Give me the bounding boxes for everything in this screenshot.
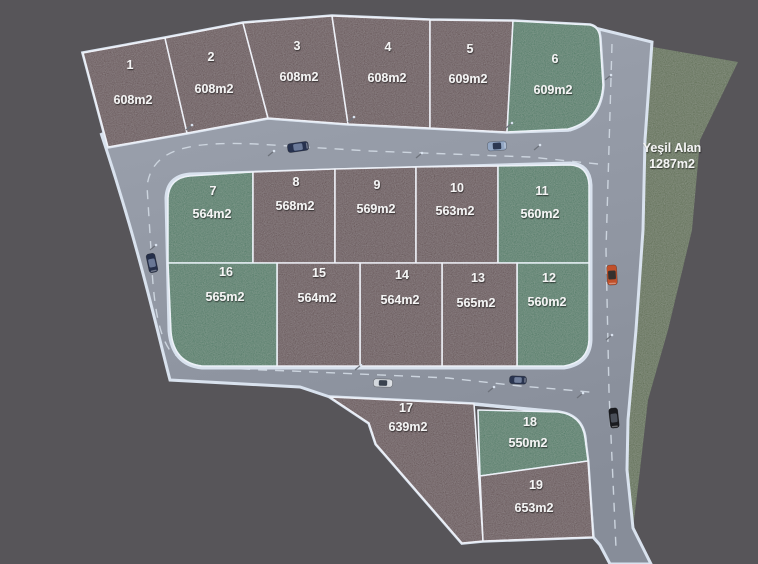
plot-number-label: 7 (210, 184, 217, 198)
plot-area-label: 609m2 (534, 83, 573, 97)
plot-number-label: 12 (542, 271, 556, 285)
plot-area-label: 608m2 (114, 93, 153, 107)
plot-number-label: 6 (552, 52, 559, 66)
plot-area-label: 564m2 (381, 293, 420, 307)
plot-number-label: 13 (471, 271, 485, 285)
sedan-navy-icon (509, 376, 526, 385)
plot-area-label: 565m2 (457, 296, 496, 310)
plot-number-label: 8 (293, 175, 300, 189)
plot-number-label: 1 (127, 58, 134, 72)
plot-number-label: 16 (219, 265, 233, 279)
sedan-light-blue-icon (487, 141, 507, 151)
plot-area-label: 550m2 (509, 436, 548, 450)
plot-area-label: 653m2 (515, 501, 554, 515)
site-plan-svg: Yeşil Alan 1287m2 1608m22608m23608m24608… (0, 0, 758, 564)
plot-number-label: 5 (467, 42, 474, 56)
site-plan: Yeşil Alan 1287m2 1608m22608m23608m24608… (0, 0, 758, 564)
plot-area-label: 564m2 (298, 291, 337, 305)
plot-number-label: 11 (535, 184, 548, 198)
sedan-white-icon (373, 379, 392, 388)
plot-area-label: 569m2 (357, 202, 396, 216)
plot-area-label: 609m2 (449, 72, 488, 86)
plot-number-label: 19 (529, 478, 543, 492)
plot-6 (507, 21, 603, 132)
plot-area-label: 608m2 (195, 82, 234, 96)
plot-area-label: 560m2 (521, 207, 560, 221)
green-area-value: 1287m2 (649, 157, 695, 171)
plot-area-label: 608m2 (368, 71, 407, 85)
plot-number-label: 14 (395, 268, 409, 282)
plot-area-label: 564m2 (193, 207, 232, 221)
plot-area-label: 560m2 (528, 295, 567, 309)
plot-area-label: 639m2 (389, 420, 428, 434)
sedan-orange-icon (606, 265, 617, 285)
plot-number-label: 15 (312, 266, 326, 280)
plot-area-label: 565m2 (206, 290, 245, 304)
plot-number-label: 3 (294, 39, 301, 53)
plot-number-label: 18 (523, 415, 537, 429)
plot-number-label: 17 (399, 401, 413, 415)
plot-area-label: 568m2 (276, 199, 315, 213)
sedan-black-icon (608, 408, 619, 429)
plot-shape (507, 21, 603, 132)
plot-number-label: 10 (450, 181, 464, 195)
plot-area-label: 608m2 (280, 70, 319, 84)
plot-area-label: 563m2 (436, 204, 475, 218)
plot-number-label: 9 (374, 178, 381, 192)
plot-number-label: 4 (385, 40, 392, 54)
green-area-label: Yeşil Alan (643, 141, 702, 155)
plot-number-label: 2 (208, 50, 215, 64)
